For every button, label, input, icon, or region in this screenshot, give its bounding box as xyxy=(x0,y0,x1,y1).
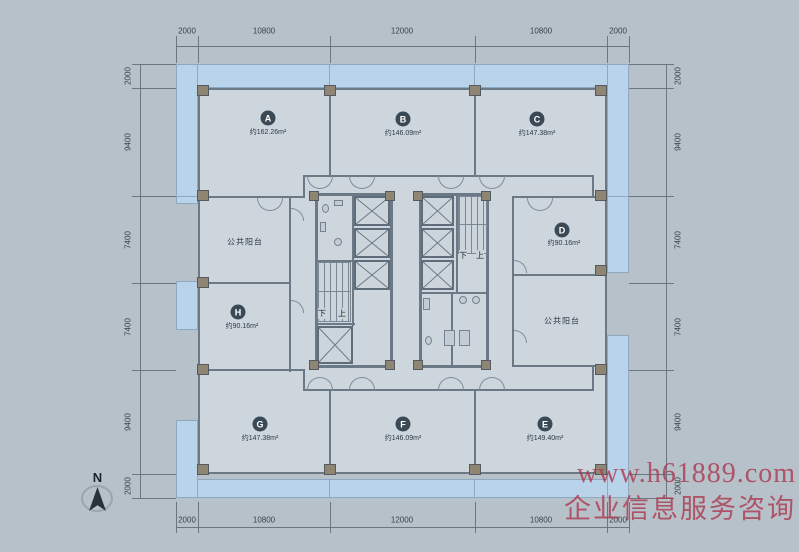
band-grid-break xyxy=(329,479,330,498)
dimension-tick xyxy=(132,498,176,499)
dim-label: 2000 xyxy=(124,67,133,85)
column xyxy=(481,360,491,370)
balcony-band-left-1 xyxy=(176,64,198,204)
partition-wall xyxy=(198,369,305,371)
dim-label: 10800 xyxy=(253,516,275,525)
column xyxy=(385,360,395,370)
elevator-icon xyxy=(317,326,353,364)
stairs-down-label: 下 xyxy=(459,250,467,261)
dimension-tick xyxy=(629,64,674,65)
toilet-fixture xyxy=(472,296,480,304)
balcony-band-top xyxy=(176,64,629,88)
partition-wall xyxy=(289,196,291,372)
room-label-b: B xyxy=(396,112,411,127)
room-area-c: 约147.38m² xyxy=(519,128,556,138)
stairs-down-label: 下 xyxy=(318,308,326,319)
room-area-a: 约162.26m² xyxy=(250,127,287,137)
column xyxy=(595,190,607,201)
partition-wall xyxy=(592,367,594,391)
dim-label: 12000 xyxy=(391,27,413,36)
column xyxy=(595,85,607,96)
dimension-tick xyxy=(132,283,176,284)
north-label: N xyxy=(90,470,105,485)
stairs-up-label: 上 xyxy=(338,308,346,319)
room-area-f: 约146.09m² xyxy=(385,433,422,443)
watermark-text: 企业信息服务咨询 xyxy=(564,487,796,526)
stairs xyxy=(458,196,487,254)
room-area-g: 约147.38m² xyxy=(242,433,279,443)
room-label-a: A xyxy=(261,111,276,126)
dimension-tick xyxy=(176,502,177,533)
dim-label: 2000 xyxy=(124,477,133,495)
toilet-fixture xyxy=(334,238,342,246)
elevator-icon xyxy=(421,196,454,226)
dim-label: 2000 xyxy=(609,27,627,36)
column xyxy=(413,191,423,201)
band-grid-break xyxy=(607,196,629,197)
toilet-fixture xyxy=(459,296,467,304)
room-label-c: C xyxy=(530,112,545,127)
partition-wall xyxy=(329,389,331,474)
column xyxy=(469,464,481,475)
partition-wall xyxy=(303,175,305,198)
elevator-icon xyxy=(354,260,390,290)
balcony-band-left-2 xyxy=(176,281,198,330)
dimension-tick xyxy=(198,36,199,63)
watermark-url: www.h61889.com xyxy=(577,458,796,490)
dimension-tick xyxy=(132,370,176,371)
partition-wall xyxy=(303,371,305,391)
toilet-fixture xyxy=(425,336,432,345)
dimension-tick xyxy=(330,502,331,533)
toilet-fixture xyxy=(334,200,343,206)
column xyxy=(197,277,209,288)
stairs-divider xyxy=(317,291,351,292)
balcony-band-right-1 xyxy=(607,64,629,273)
toilet-fixture xyxy=(423,298,430,310)
dimension-tick xyxy=(629,196,674,197)
dimension-tick xyxy=(629,88,674,89)
dim-label: 2000 xyxy=(178,516,196,525)
dim-label: 7400 xyxy=(124,231,133,249)
dim-label: 10800 xyxy=(530,27,552,36)
balcony-band-bottom xyxy=(176,479,629,498)
column xyxy=(197,364,209,375)
dim-label: 9400 xyxy=(674,413,683,431)
band-grid-break xyxy=(474,479,475,498)
column xyxy=(385,191,395,201)
dimension-line-bottom xyxy=(176,527,629,528)
dimension-tick xyxy=(629,283,674,284)
room-label-f: F xyxy=(396,417,411,432)
column xyxy=(595,364,607,375)
dimension-tick xyxy=(132,88,176,89)
dim-label: 10800 xyxy=(530,516,552,525)
partition-wall xyxy=(329,88,331,175)
dimension-tick xyxy=(176,36,177,63)
dim-label: 9400 xyxy=(124,133,133,151)
dim-label: 7400 xyxy=(674,231,683,249)
dimension-tick xyxy=(330,36,331,63)
column xyxy=(197,464,209,475)
partition-wall xyxy=(592,175,594,198)
room-area-b: 约146.09m² xyxy=(385,128,422,138)
column xyxy=(197,85,209,96)
dimension-line-top xyxy=(176,46,629,47)
room-label-h: H xyxy=(231,305,246,320)
dimension-line-left xyxy=(140,64,141,498)
column xyxy=(197,190,209,201)
dimension-tick xyxy=(629,36,630,63)
room-area-h: 约90.16m² xyxy=(226,321,259,331)
dim-label: 2000 xyxy=(674,67,683,85)
dimension-tick xyxy=(629,370,674,371)
toilet-fixture xyxy=(320,222,326,232)
toilet-fixture xyxy=(322,204,329,213)
dimension-tick xyxy=(132,64,176,65)
room-area-d: 约90.16m² xyxy=(548,238,581,248)
floor-plan-canvas: 下 上 下 上 xyxy=(0,0,799,552)
dimension-tick xyxy=(607,36,608,63)
stairs-up-label: 上 xyxy=(476,250,484,261)
room-label-d: D xyxy=(555,223,570,238)
elevator-icon xyxy=(421,260,454,290)
column xyxy=(324,85,336,96)
dimension-tick xyxy=(198,502,199,533)
room-label-e: E xyxy=(538,417,553,432)
toilet-fixture xyxy=(444,330,455,346)
column xyxy=(469,85,481,96)
balcony-band-left-3 xyxy=(176,420,198,498)
room-label-g: G xyxy=(253,417,268,432)
column xyxy=(595,265,607,276)
dimension-tick xyxy=(132,474,176,475)
partition-wall xyxy=(474,88,476,175)
partition-wall xyxy=(513,274,607,276)
dimension-tick xyxy=(132,196,176,197)
dimension-tick xyxy=(475,36,476,63)
dimension-tick xyxy=(475,502,476,533)
dimension-line-right xyxy=(666,64,667,498)
dim-label: 7400 xyxy=(124,318,133,336)
room-area-e: 约149.40m² xyxy=(527,433,564,443)
dim-label: 12000 xyxy=(391,516,413,525)
dim-label: 10800 xyxy=(253,27,275,36)
dim-label: 7400 xyxy=(674,318,683,336)
toilet-fixture xyxy=(459,330,470,346)
balcony-label-right: 公共阳台 xyxy=(544,316,580,327)
elevator-icon xyxy=(354,228,390,258)
column xyxy=(413,360,423,370)
column xyxy=(309,191,319,201)
column xyxy=(324,464,336,475)
dim-label: 9400 xyxy=(124,413,133,431)
dim-label: 9400 xyxy=(674,133,683,151)
dim-label: 2000 xyxy=(178,27,196,36)
core-wall xyxy=(315,323,355,325)
partition-wall xyxy=(474,389,476,474)
column xyxy=(309,360,319,370)
band-grid-break xyxy=(176,196,198,197)
stairs-divider xyxy=(458,224,487,225)
core-wall xyxy=(419,292,489,294)
balcony-label-left: 公共阳台 xyxy=(227,237,263,248)
column xyxy=(481,191,491,201)
elevator-icon xyxy=(421,228,454,258)
partition-wall xyxy=(198,282,291,284)
